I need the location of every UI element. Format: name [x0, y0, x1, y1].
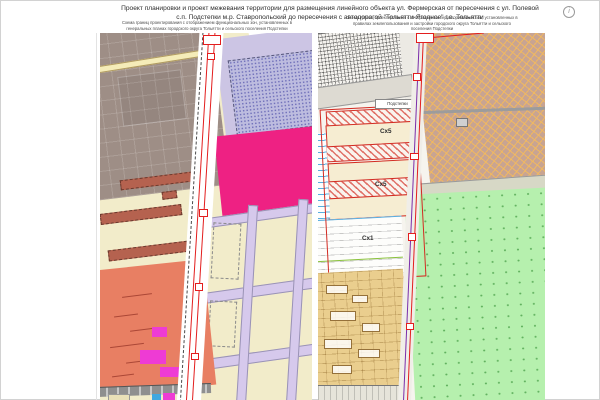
- parcel: [352, 295, 368, 303]
- info-icon[interactable]: i: [563, 6, 575, 18]
- parcel: [330, 311, 356, 321]
- zone-green-dotted: [404, 187, 545, 400]
- zone-lavender-dotted: [228, 50, 312, 136]
- bottom-parcel-strip: [318, 385, 406, 400]
- boundary-node: [199, 209, 208, 217]
- map-detail: [108, 394, 130, 400]
- magenta-patch: [152, 327, 167, 337]
- boundary-node: [195, 283, 203, 291]
- building-row: [100, 204, 182, 225]
- block-outline: [208, 300, 237, 347]
- parcel: [358, 349, 380, 358]
- left-map-functional-zones: [100, 33, 312, 400]
- boundary-node: [191, 353, 199, 360]
- parcel: [324, 339, 352, 349]
- block-outline: [211, 222, 242, 279]
- document-page: Проект планировки и проект межевания тер…: [0, 0, 600, 400]
- magenta-patch: [160, 367, 180, 377]
- map-detail: [152, 394, 161, 400]
- boundary-node: [413, 73, 421, 81]
- boundary-start-marker: [416, 33, 434, 43]
- street-vertical: [286, 199, 309, 400]
- map-detail: [163, 393, 175, 400]
- zone-label-sx5-upper: Сх5: [380, 128, 392, 135]
- map-detail: [456, 118, 468, 127]
- boundary-node: [410, 153, 419, 160]
- parcel: [326, 285, 348, 294]
- zone-label-sx5-lower: Сх5: [375, 181, 387, 188]
- boundary-node: [408, 233, 416, 241]
- right-map-caption: Схема границ проектирования с отображени…: [346, 15, 518, 32]
- magenta-patch: [140, 350, 166, 364]
- building: [162, 190, 178, 200]
- page-margin-rule: [96, 33, 97, 400]
- boundary-node: [207, 53, 215, 60]
- boundary-start-marker: [203, 35, 221, 45]
- boundary-node: [406, 323, 414, 330]
- parcel: [362, 323, 380, 332]
- zone-brown-subparcel: [117, 69, 187, 126]
- zone-label-sx1: Сх1: [362, 235, 374, 242]
- right-map-territorial-zones: Подстепки Сх5 Сх5 Сх1: [318, 33, 545, 400]
- left-map-caption: Схема границ проектирования с отображени…: [118, 20, 296, 31]
- page-title-line1: Проект планировки и проект межевания тер…: [105, 4, 555, 13]
- parcel: [332, 365, 352, 374]
